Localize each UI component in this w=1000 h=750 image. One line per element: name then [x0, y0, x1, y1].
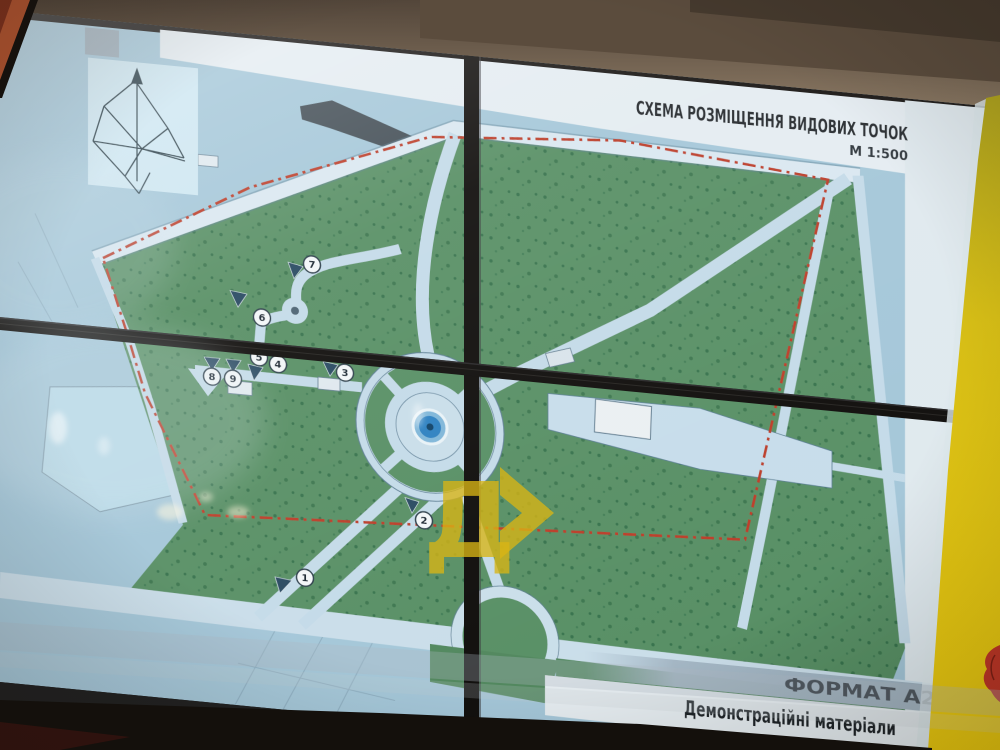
scene: ФОРМАТ А2 Демонстраційні матеріали — [0, 0, 1000, 750]
photo-of-videowall: ФОРМАТ А2 Демонстраційні матеріали — [0, 0, 1000, 750]
vignette — [0, 0, 1000, 750]
